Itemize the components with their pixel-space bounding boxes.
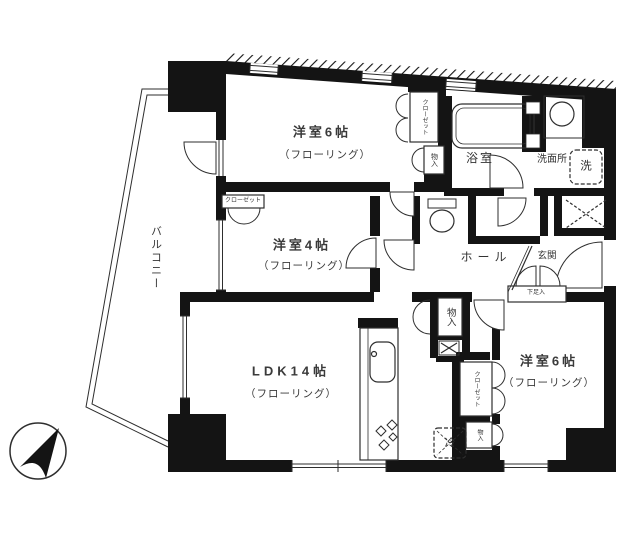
storage-hall-doors — [413, 300, 430, 334]
small-storage-box — [439, 341, 459, 355]
kitchen-tap — [372, 352, 377, 357]
hall-corridor-door — [384, 240, 414, 270]
closet-top-doors — [396, 94, 408, 142]
stove-burners — [376, 420, 397, 450]
balcony-door — [184, 142, 216, 174]
kitchen-counter — [360, 328, 398, 460]
bathtub — [452, 104, 534, 148]
washbasin — [550, 102, 574, 126]
floor-plan: 洋室6帖 （フローリング） 洋室4帖 （フローリング） LDK14帖 （フローリ… — [0, 0, 624, 538]
kitchen-sink — [370, 342, 395, 382]
room-sub-bedroom4: （フローリング） — [258, 261, 350, 272]
room-label-bedroom6-top: 洋室6帖 — [293, 126, 351, 139]
label-washer: 洗 — [580, 161, 592, 173]
room-label-balcony: バルコニー — [150, 226, 161, 291]
label-shoe-box: 下足入 — [527, 290, 545, 296]
room-sub-ldk: （フローリング） — [245, 389, 337, 400]
toilet — [428, 199, 456, 232]
room-label-bath: 浴室 — [466, 152, 494, 164]
storage-bedroom6-doors — [492, 424, 503, 446]
room-sub-bedroom6-bottom: （フローリング） — [503, 378, 595, 389]
walls — [168, 53, 616, 472]
label-closet-top: クローゼット — [421, 99, 427, 135]
meter-box — [566, 200, 606, 228]
label-storage-top: 物入 — [431, 153, 438, 167]
bedroom6-top-door — [390, 192, 414, 216]
label-closet-bedroom4: クローゼット — [225, 198, 261, 204]
room-label-hall: ホール — [460, 251, 511, 263]
bedroom6-bottom-door — [474, 300, 504, 330]
storage-top-doors — [412, 148, 424, 172]
washroom-door — [498, 198, 526, 226]
label-fridge: 冷 — [445, 438, 456, 449]
label-closet-bedroom6: クローゼット — [473, 371, 479, 407]
label-storage-hall: 物入 — [445, 308, 455, 327]
compass-icon — [10, 423, 66, 479]
room-label-bedroom4: 洋室4帖 — [273, 239, 331, 252]
room-label-entrance: 玄関 — [537, 251, 556, 261]
label-storage-bedroom6: 物入 — [476, 429, 482, 441]
room-label-ldk: LDK14帖 — [252, 365, 330, 378]
room-sub-bedroom6-top: （フローリング） — [279, 150, 371, 161]
room-label-washroom: 洗面所 — [537, 155, 567, 165]
bedroom4-door — [346, 238, 376, 268]
shoe-box-door-right — [540, 266, 560, 286]
bath-door — [490, 155, 523, 188]
room-label-bedroom6-bottom: 洋室6帖 — [520, 355, 578, 368]
closet-bedroom4-doors — [228, 208, 260, 224]
entrance-door — [556, 242, 602, 288]
